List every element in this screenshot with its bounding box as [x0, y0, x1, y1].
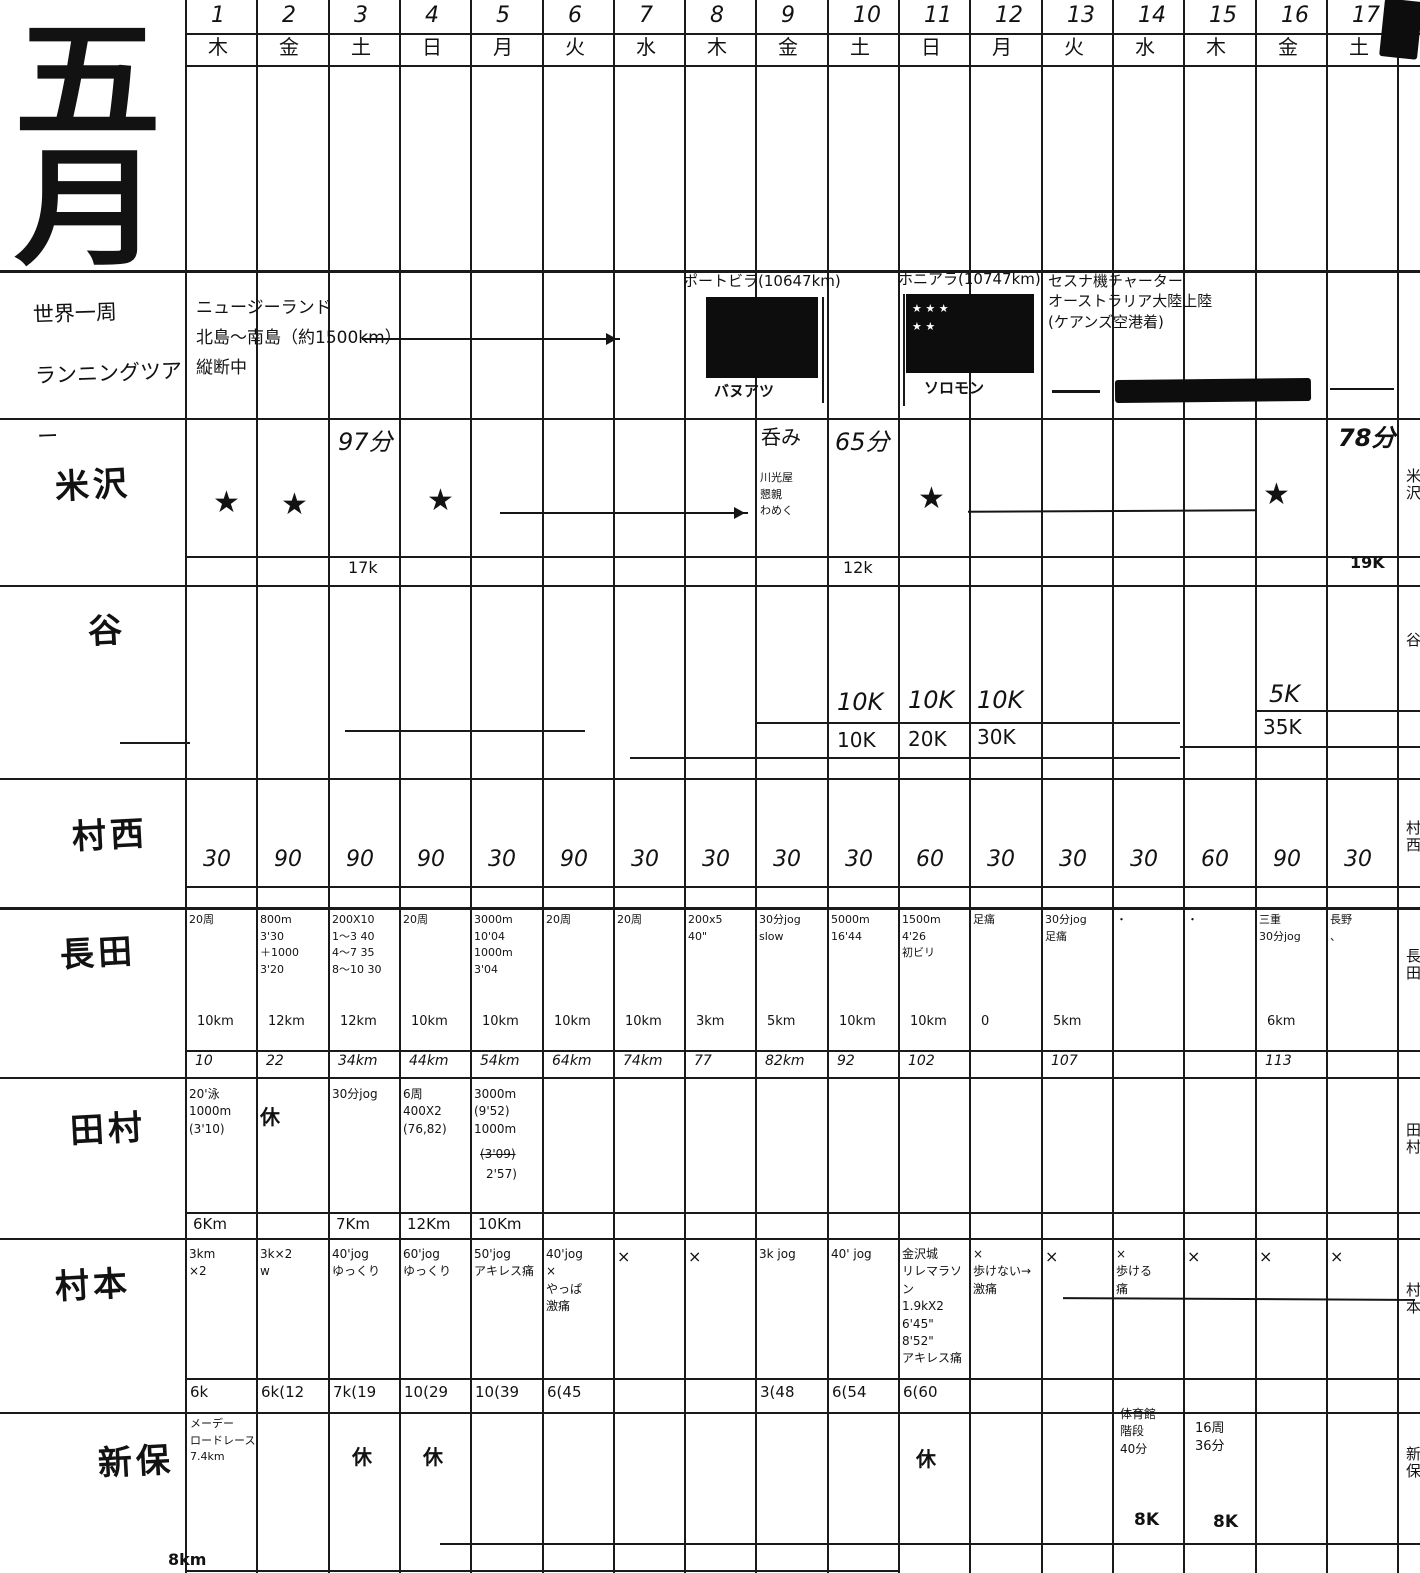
- muramoto-days-10-cum: 6(60: [903, 1382, 963, 1402]
- muranishi-values-7: 30: [702, 845, 752, 875]
- yonezawa-d9_top: 呑み: [761, 424, 831, 451]
- right_labels-tani: 谷: [1400, 632, 1420, 649]
- weekdays-10: 日: [921, 34, 961, 61]
- grid-hline: [0, 778, 1420, 780]
- nagata-days-0-km: 10km: [197, 1013, 253, 1031]
- weekdays-13: 水: [1135, 34, 1175, 61]
- grid-vline: [399, 0, 401, 1573]
- weekdays-0: 木: [208, 34, 248, 61]
- nagata-days-7-main: 200x5 40": [688, 912, 756, 945]
- nagata-days-3-main: 20周: [403, 912, 471, 929]
- grid-hline: [0, 1412, 1420, 1414]
- muranishi-values-3: 90: [417, 845, 467, 875]
- grid-vline: [256, 0, 258, 1573]
- dates-1: 2: [282, 1, 322, 31]
- tamura-days-2-km: 7Km: [336, 1214, 392, 1234]
- nagata-days-9-cum: 92: [837, 1052, 893, 1071]
- yonezawa-d2: ★: [281, 490, 321, 520]
- muramoto-days-13-main: × 歩ける 痛: [1116, 1246, 1184, 1298]
- nagata-days-5-cum: 64km: [552, 1052, 608, 1071]
- tani-d16: 5K: [1269, 678, 1329, 710]
- shinbo-d4: 休: [423, 1444, 463, 1471]
- nagata-days-8-cum: 82km: [765, 1052, 821, 1071]
- nagata-days-8-km: 5km: [767, 1013, 823, 1031]
- grid-vline: [328, 0, 330, 1573]
- weekdays-12: 火: [1064, 34, 1104, 61]
- dates-8: 9: [781, 1, 821, 31]
- charter-dash: [1052, 390, 1100, 393]
- muramoto-days-4-main: 50'jog アキレス痛: [474, 1246, 542, 1281]
- tani-d10_cum: 10K: [837, 727, 897, 754]
- muramoto-days-8-cum: 3(48: [760, 1382, 820, 1402]
- tani-d11: 10K: [908, 684, 968, 716]
- muramoto-days-4-cum: 10(39: [475, 1382, 535, 1402]
- muramoto-days-8-main: 3k jog: [759, 1246, 827, 1263]
- grid-hline: [0, 907, 1420, 910]
- grid-hline: [755, 722, 1180, 724]
- muranishi-values-4: 30: [488, 845, 538, 875]
- weekdays-2: 土: [351, 34, 391, 61]
- muranishi-values-1: 90: [274, 845, 324, 875]
- muramoto-days-3-main: 60'jog ゆっくり: [403, 1246, 471, 1281]
- muranishi-values-13: 30: [1130, 845, 1180, 875]
- nagata-days-6-main: 20周: [617, 912, 685, 929]
- nagata-days-3-km: 10km: [411, 1013, 467, 1031]
- tour-flag1_caption: ポートビラ(10647km): [683, 271, 883, 291]
- muranishi-values-14: 60: [1201, 845, 1251, 875]
- tani-d10: 10K: [837, 686, 897, 718]
- tamura-days-4-km: 10Km: [478, 1214, 534, 1234]
- muramoto-days-0-main: 3km ×2: [189, 1246, 257, 1281]
- shinbo-bottom_partial: 8km: [168, 1549, 228, 1571]
- tour-flag2_stars: ★ ★ ★ ★ ★: [912, 300, 982, 335]
- tour-row-line: [1330, 388, 1394, 390]
- grid-hline: [440, 1543, 1420, 1545]
- grid-hline: [1180, 746, 1420, 748]
- left_labels-tour: 世界一周 ランニングツアー: [32, 279, 198, 467]
- grid-vline: [903, 294, 905, 406]
- muramoto-days-3-cum: 10(29: [404, 1382, 464, 1402]
- muranishi-values-9: 30: [845, 845, 895, 875]
- tamura-days-3-main: 6周 400X2 (76,82): [403, 1086, 471, 1138]
- muranishi-values-12: 30: [1059, 845, 1109, 875]
- grid-vline: [1112, 0, 1114, 1573]
- tani-d12_cum: 30K: [977, 724, 1037, 751]
- dates-2: 3: [354, 1, 394, 31]
- right_labels-shinbo: 新保: [1400, 1446, 1420, 1480]
- shinbo-d15: 16周 36分: [1195, 1420, 1261, 1455]
- muranishi-values-15: 90: [1273, 845, 1323, 875]
- scan-smudge-top-right: [1379, 0, 1420, 60]
- nagata-days-9-main: 5000m 16'44: [831, 912, 899, 945]
- nagata-days-12-main: 30分jog 足痛: [1045, 912, 1113, 945]
- shinbo-d14_cum: 8K: [1134, 1506, 1174, 1536]
- nagata-days-1-cum: 22: [266, 1052, 322, 1071]
- left_labels-muranishi: 村西: [71, 808, 213, 861]
- nagata-days-9-km: 10km: [839, 1013, 895, 1031]
- dates-7: 8: [710, 1, 750, 31]
- shinbo-d15_cum: 8K: [1213, 1508, 1253, 1538]
- nagata-days-4-cum: 54km: [480, 1052, 536, 1071]
- grid-hline: [185, 1378, 1420, 1380]
- grid-vline: [1326, 0, 1328, 1573]
- nagata-days-14-main: ・: [1187, 912, 1255, 929]
- tour-flag2_country: ソロモン: [924, 378, 1024, 398]
- dates-9: 10: [853, 1, 893, 31]
- muramoto-days-1-main: 3k×2 w: [260, 1246, 328, 1281]
- tamura-days-4-tail: 2'57): [486, 1166, 542, 1183]
- muramoto-days-14-main: ×: [1187, 1246, 1255, 1268]
- grid-vline: [1397, 0, 1399, 1573]
- nagata-days-10-main: 1500m 4'26 初ビリ: [902, 912, 970, 962]
- muranishi-values-6: 30: [631, 845, 681, 875]
- yonezawa-d9_note: 川光屋 懇親 わめく: [760, 470, 826, 520]
- muranishi-values-0: 30: [203, 845, 253, 875]
- weekdays-4: 月: [493, 34, 533, 61]
- muramoto-days-0-cum: 6k: [190, 1382, 250, 1402]
- grid-hline: [0, 418, 1420, 420]
- tour-flag1_country: バヌアツ: [714, 381, 814, 401]
- nagata-days-1-main: 800m 3'30 ＋1000 3'20: [260, 912, 328, 978]
- muranishi-values-5: 90: [560, 845, 610, 875]
- muramoto-days-10-main: 金沢城 リレマラソン 1.9kX2 6'45" 8'52" アキレス痛: [902, 1246, 970, 1368]
- tamura-days-0-km: 6Km: [193, 1214, 249, 1234]
- nagata-days-3-cum: 44km: [409, 1052, 465, 1071]
- weekdays-5: 火: [565, 34, 605, 61]
- grid-vline: [613, 0, 615, 1573]
- tamura-days-4-main: 3000m (9'52) 1000m: [474, 1086, 542, 1138]
- yonezawa-d1: ★: [213, 488, 253, 518]
- muramoto-days-6-main: ×: [617, 1246, 685, 1268]
- dates-4: 5: [496, 1, 536, 31]
- grid-hline: [185, 65, 1420, 67]
- grid-vline: [470, 0, 472, 1573]
- grid-vline: [755, 0, 757, 1573]
- grid-hline: [0, 1077, 1420, 1079]
- nagata-days-6-km: 10km: [625, 1013, 681, 1031]
- muramoto-span-line: [1063, 1297, 1415, 1301]
- muramoto-days-9-cum: 6(54: [832, 1382, 892, 1402]
- nagata-days-10-km: 10km: [910, 1013, 966, 1031]
- shinbo-d11: 休: [916, 1446, 956, 1473]
- nagata-days-11-km: 0: [981, 1013, 1037, 1031]
- left_labels-tani: 谷: [87, 606, 169, 656]
- nagata-days-16-main: 長野 、: [1330, 912, 1398, 945]
- muramoto-days-11-main: × 歩けない→ 激痛: [973, 1246, 1041, 1298]
- grid-vline: [1041, 0, 1043, 1573]
- nagata-days-4-main: 3000m 10'04 1000m 3'04: [474, 912, 542, 978]
- muranishi-values-2: 90: [346, 845, 396, 875]
- right_labels-muranishi: 村西: [1400, 820, 1420, 854]
- grid-hline: [120, 742, 190, 744]
- grid-hline: [630, 757, 1180, 759]
- weekdays-6: 水: [636, 34, 676, 61]
- dates-11: 12: [995, 1, 1035, 31]
- nagata-days-0-cum: 10: [195, 1052, 251, 1071]
- grid-hline: [0, 1238, 1420, 1240]
- dates-10: 11: [924, 1, 964, 31]
- dates-12: 13: [1067, 1, 1107, 31]
- month_title: 五 月: [14, 18, 210, 274]
- nagata-days-12-cum: 107: [1051, 1052, 1107, 1071]
- grid-hline: [185, 1570, 900, 1572]
- tamura-days-0-main: 20'泳 1000m (3'10): [189, 1086, 257, 1138]
- grid-vline: [1183, 0, 1185, 1573]
- muramoto-days-15-main: ×: [1259, 1246, 1327, 1268]
- tani-d11_cum: 20K: [908, 726, 968, 753]
- nagata-days-2-km: 12km: [340, 1013, 396, 1031]
- grid-vline: [898, 0, 900, 1573]
- yonezawa-d10_bottom: 12k: [843, 557, 903, 579]
- shinbo-d14: 体育館 階段 40分: [1120, 1406, 1186, 1458]
- grid-vline: [542, 0, 544, 1573]
- muranishi-values-11: 30: [987, 845, 1037, 875]
- weekdays-3: 日: [422, 34, 462, 61]
- dates-0: 1: [211, 1, 251, 31]
- nagata-days-15-km: 6km: [1267, 1013, 1323, 1031]
- nagata-days-5-km: 10km: [554, 1013, 610, 1031]
- yonezawa-arrow: [500, 512, 748, 514]
- yonezawa-d17_top: 78分: [1338, 422, 1418, 454]
- muranishi-values-10: 60: [916, 845, 966, 875]
- yonezawa-d3_top: 97分: [338, 426, 418, 458]
- shinbo-d3: 休: [352, 1444, 392, 1471]
- dates-14: 15: [1209, 1, 1249, 31]
- muramoto-days-7-main: ×: [688, 1246, 756, 1268]
- right_labels-yonezawa: 米沢: [1400, 468, 1420, 502]
- muramoto-days-5-main: 40'jog × やっぱ 激痛: [546, 1246, 614, 1316]
- dates-6: 7: [639, 1, 679, 31]
- muranishi-values-16: 30: [1344, 845, 1394, 875]
- tamura-days-3-km: 12Km: [407, 1214, 463, 1234]
- yonezawa-d10_top: 65分: [835, 426, 915, 458]
- weekdays-1: 金: [279, 34, 319, 61]
- nagata-days-0-main: 20周: [189, 912, 257, 929]
- tamura-days-2-main: 30分jog: [332, 1086, 400, 1103]
- weekdays-14: 木: [1206, 34, 1246, 61]
- grid-hline: [345, 730, 585, 732]
- grid-vline: [827, 0, 829, 1573]
- tamura-days-4-strike: (3'09): [480, 1146, 536, 1163]
- nagata-days-10-cum: 102: [908, 1052, 964, 1071]
- dates-3: 4: [425, 1, 465, 31]
- left_labels-yonezawa: 米沢: [54, 458, 196, 511]
- nagata-days-11-main: 足痛: [973, 912, 1041, 929]
- nagata-days-15-cum: 113: [1265, 1052, 1321, 1071]
- weekdays-7: 木: [707, 34, 747, 61]
- nagata-days-15-main: 三重 30分jog: [1259, 912, 1327, 945]
- nagata-days-7-cum: 77: [694, 1052, 750, 1071]
- weekdays-15: 金: [1278, 34, 1318, 61]
- marker-redaction-bar: [1115, 378, 1311, 403]
- muramoto-days-9-main: 40' jog: [831, 1246, 899, 1263]
- grid-hline: [185, 886, 1420, 888]
- nagata-days-8-main: 30分jog slow: [759, 912, 827, 945]
- nagata-days-5-main: 20周: [546, 912, 614, 929]
- nagata-days-6-cum: 74km: [623, 1052, 679, 1071]
- yonezawa-d11: ★: [918, 484, 958, 514]
- shinbo-d1: メーデー ロードレース 7.4km: [190, 1416, 270, 1466]
- nagata-days-12-km: 5km: [1053, 1013, 1109, 1031]
- yonezawa-d3_bottom: 17k: [348, 557, 408, 579]
- grid-vline: [684, 0, 686, 1573]
- weekdays-9: 土: [850, 34, 890, 61]
- vanuatu-flag: [706, 297, 818, 378]
- muramoto-days-16-main: ×: [1330, 1246, 1398, 1268]
- tamura-days-1-main: 休: [260, 1104, 328, 1131]
- may-training-log-sheet: 1234567891011121314151617木金土日月火水木金土日月火水木…: [0, 0, 1420, 1573]
- yonezawa-d17_bottom: 19K: [1350, 552, 1410, 574]
- tani-d16_cum: 35K: [1263, 714, 1323, 741]
- muramoto-days-5-cum: 6(45: [547, 1382, 607, 1402]
- tour-charter_note: セスナ機チャーター オーストラリア大陸上陸 (ケアンズ空港着): [1048, 271, 1308, 332]
- dates-5: 6: [568, 1, 608, 31]
- nagata-days-2-cum: 34km: [338, 1052, 394, 1071]
- tani-d12: 10K: [977, 684, 1037, 716]
- right_labels-tamura: 田村: [1400, 1122, 1420, 1156]
- right_labels-nagata: 長田: [1400, 948, 1420, 982]
- weekdays-11: 月: [992, 34, 1032, 61]
- grid-vline: [822, 297, 824, 403]
- muramoto-days-1-cum: 6k(12: [261, 1382, 321, 1402]
- yonezawa-d4: ★: [427, 486, 467, 516]
- nagata-days-1-km: 12km: [268, 1013, 324, 1031]
- grid-vline: [1255, 0, 1257, 1573]
- left_labels-muramoto: 村本: [54, 1258, 196, 1311]
- nagata-days-13-main: ・: [1116, 912, 1184, 929]
- muramoto-days-2-cum: 7k(19: [333, 1382, 393, 1402]
- muramoto-days-12-main: ×: [1045, 1246, 1113, 1268]
- nagata-days-4-km: 10km: [482, 1013, 538, 1031]
- dates-15: 16: [1281, 1, 1321, 31]
- nagata-days-2-main: 200X10 1〜3 40 4〜7 35 8〜10 30: [332, 912, 400, 978]
- dates-13: 14: [1138, 1, 1178, 31]
- yonezawa-d16: ★: [1263, 480, 1303, 510]
- tour-progress-arrow: [362, 338, 620, 340]
- left_labels-nagata: 長田: [59, 926, 201, 979]
- muranishi-values-8: 30: [773, 845, 823, 875]
- grid-hline: [0, 585, 1420, 587]
- weekdays-8: 金: [778, 34, 818, 61]
- muramoto-days-2-main: 40'jog ゆっくり: [332, 1246, 400, 1281]
- nagata-days-7-km: 3km: [696, 1013, 752, 1031]
